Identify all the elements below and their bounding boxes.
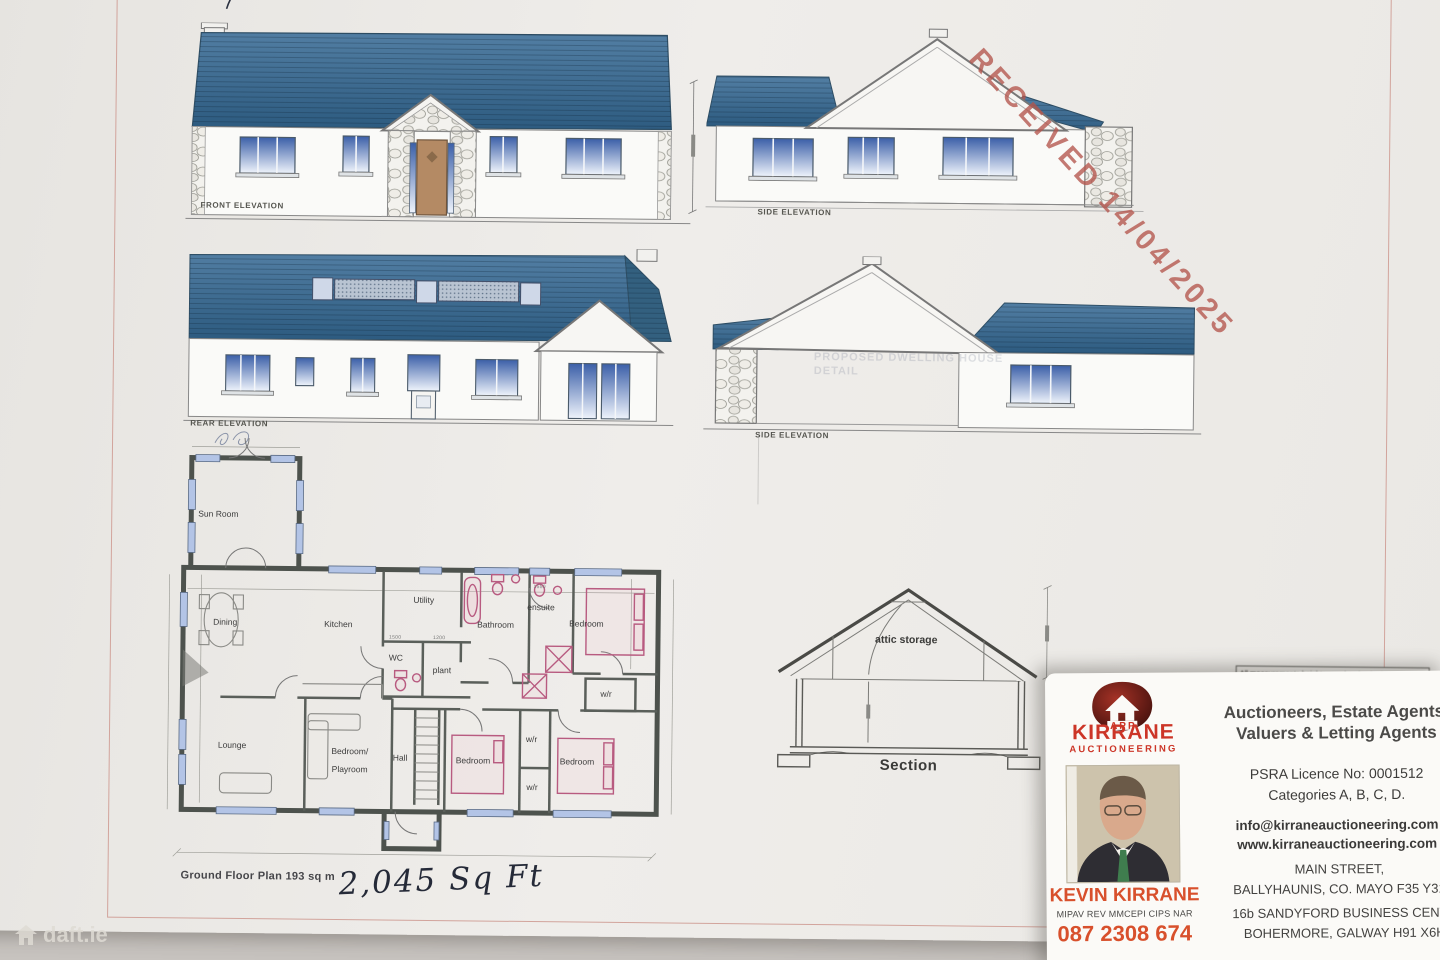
dimension-line bbox=[685, 80, 700, 215]
faint-drawing-subtitle: DETAIL bbox=[814, 365, 859, 377]
card-tagline: Auctioneers, Estate Agents, Valuers & Le… bbox=[1223, 701, 1440, 745]
logo-kirrane-text: KIRRANE bbox=[1045, 720, 1201, 745]
room-label-dining: Dining bbox=[213, 617, 237, 627]
side-elevation-2-drawing bbox=[703, 255, 1205, 445]
floor-plan-drawing: Sun Room Dining Kitchen Utility WC plant… bbox=[158, 434, 688, 884]
card-psra-licence: PSRA Licence No: 0001512 Categories A, B… bbox=[1224, 763, 1440, 807]
daft-house-icon bbox=[14, 924, 38, 946]
front-elevation-drawing bbox=[185, 22, 702, 227]
agent-name: KEVIN KIRRANE bbox=[1046, 884, 1202, 907]
room-label-utility: Utility bbox=[413, 595, 434, 605]
agent-portrait-photo bbox=[1066, 764, 1181, 883]
room-label-playroom: Bedroom/ Playroom bbox=[312, 741, 388, 778]
floor-plan-caption: Ground Floor Plan 193 sq m bbox=[180, 869, 335, 883]
front-elevation-label: FRONT ELEVATION bbox=[200, 201, 283, 211]
room-label-bathroom: Bathroom bbox=[477, 619, 514, 629]
section-caption: Section bbox=[880, 757, 938, 775]
pen-mark bbox=[223, 0, 257, 11]
room-label-plant: plant bbox=[433, 665, 452, 675]
agent-qualifications: MIPAV REV MMCEPI CIPS NAR bbox=[1047, 908, 1203, 919]
room-label-wr-closet-2: w/r bbox=[526, 782, 537, 792]
room-label-kitchen: Kitchen bbox=[324, 619, 352, 629]
rear-elevation-label: REAR ELEVATION bbox=[190, 418, 268, 428]
room-label-bedroom-mid: Bedroom bbox=[456, 755, 491, 765]
business-card: APP KIRRANE AUCTIONEERING Auctioneers, E… bbox=[1045, 671, 1440, 960]
daft-watermark: daft.ie bbox=[14, 922, 108, 948]
logo-auctioneering-text: AUCTIONEERING bbox=[1045, 743, 1201, 755]
faint-drawing-title: PROPOSED DWELLING HOUSE bbox=[814, 351, 1003, 365]
side-elevation-2-label: SIDE ELEVATION bbox=[755, 430, 829, 440]
room-label-ensuite: ensuite bbox=[527, 602, 555, 612]
room-label-lounge: Lounge bbox=[218, 740, 246, 750]
room-label-sun-room: Sun Room bbox=[198, 509, 238, 519]
room-label-wr-closet-1: w/r bbox=[526, 734, 537, 744]
photo-of-architectural-plans: FRONT ELEVATION bbox=[0, 0, 1440, 960]
dim-label-1: 1500 bbox=[389, 635, 401, 641]
card-email: info@kirraneauctioneering.com bbox=[1235, 817, 1438, 833]
rear-elevation-drawing bbox=[183, 244, 680, 434]
daft-watermark-text: daft.ie bbox=[43, 922, 108, 948]
room-label-bedroom-top: Bedroom bbox=[569, 618, 604, 628]
dim-label-2: 1200 bbox=[433, 635, 445, 641]
card-website: www.kirraneauctioneering.com bbox=[1237, 836, 1437, 852]
room-label-wr-top: w/r bbox=[600, 689, 611, 699]
card-address-mayo: MAIN STREET, BALLYHAUNIS, CO. MAYO F35 Y… bbox=[1214, 858, 1440, 900]
card-contact-lines: info@kirraneauctioneering.com www.kirran… bbox=[1224, 815, 1440, 855]
section-drawing bbox=[770, 579, 1062, 782]
card-address-galway: 16b SANDYFORD BUSINESS CENTR BOHERMORE, … bbox=[1215, 902, 1440, 944]
side-elevation-1-drawing bbox=[705, 23, 1147, 228]
dim-label-3: 1550 bbox=[534, 584, 546, 590]
agent-phone-number: 087 2308 674 bbox=[1047, 920, 1203, 947]
room-label-bedroom-right: Bedroom bbox=[560, 756, 595, 766]
portrait-illustration bbox=[1067, 765, 1180, 882]
room-label-hall: Hall bbox=[393, 753, 408, 763]
attic-storage-label: attic storage bbox=[875, 634, 938, 647]
floor-plan-walls bbox=[158, 434, 688, 884]
room-label-wc: WC bbox=[389, 653, 403, 663]
side-elevation-1-label: SIDE ELEVATION bbox=[757, 207, 831, 217]
